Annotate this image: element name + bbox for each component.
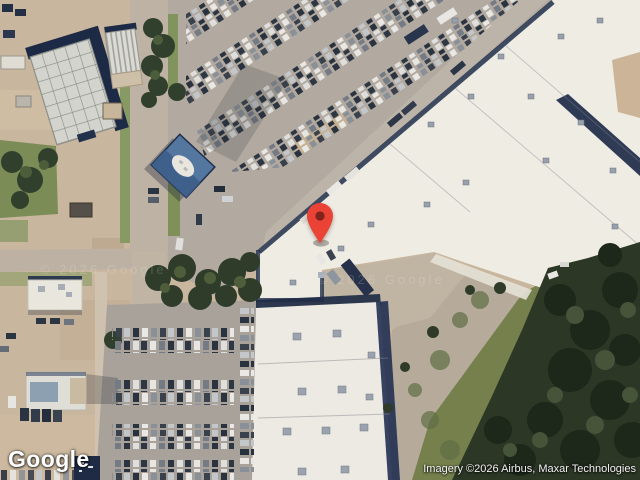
map-viewport[interactable]: © 2026 Google © 2026 Google Google Image… bbox=[0, 0, 640, 480]
imagery-attribution: Imagery ©2026 Airbus, Maxar Technologies bbox=[423, 463, 636, 475]
pin-inner-dot bbox=[315, 211, 324, 220]
map-watermark: © 2026 Google bbox=[40, 262, 167, 277]
map-watermark: © 2026 Google bbox=[318, 272, 445, 287]
warehouse-roof-south bbox=[252, 302, 392, 480]
location-pin-icon[interactable] bbox=[307, 203, 333, 243]
google-logo[interactable]: Google bbox=[8, 446, 90, 473]
pin-body bbox=[307, 203, 333, 243]
